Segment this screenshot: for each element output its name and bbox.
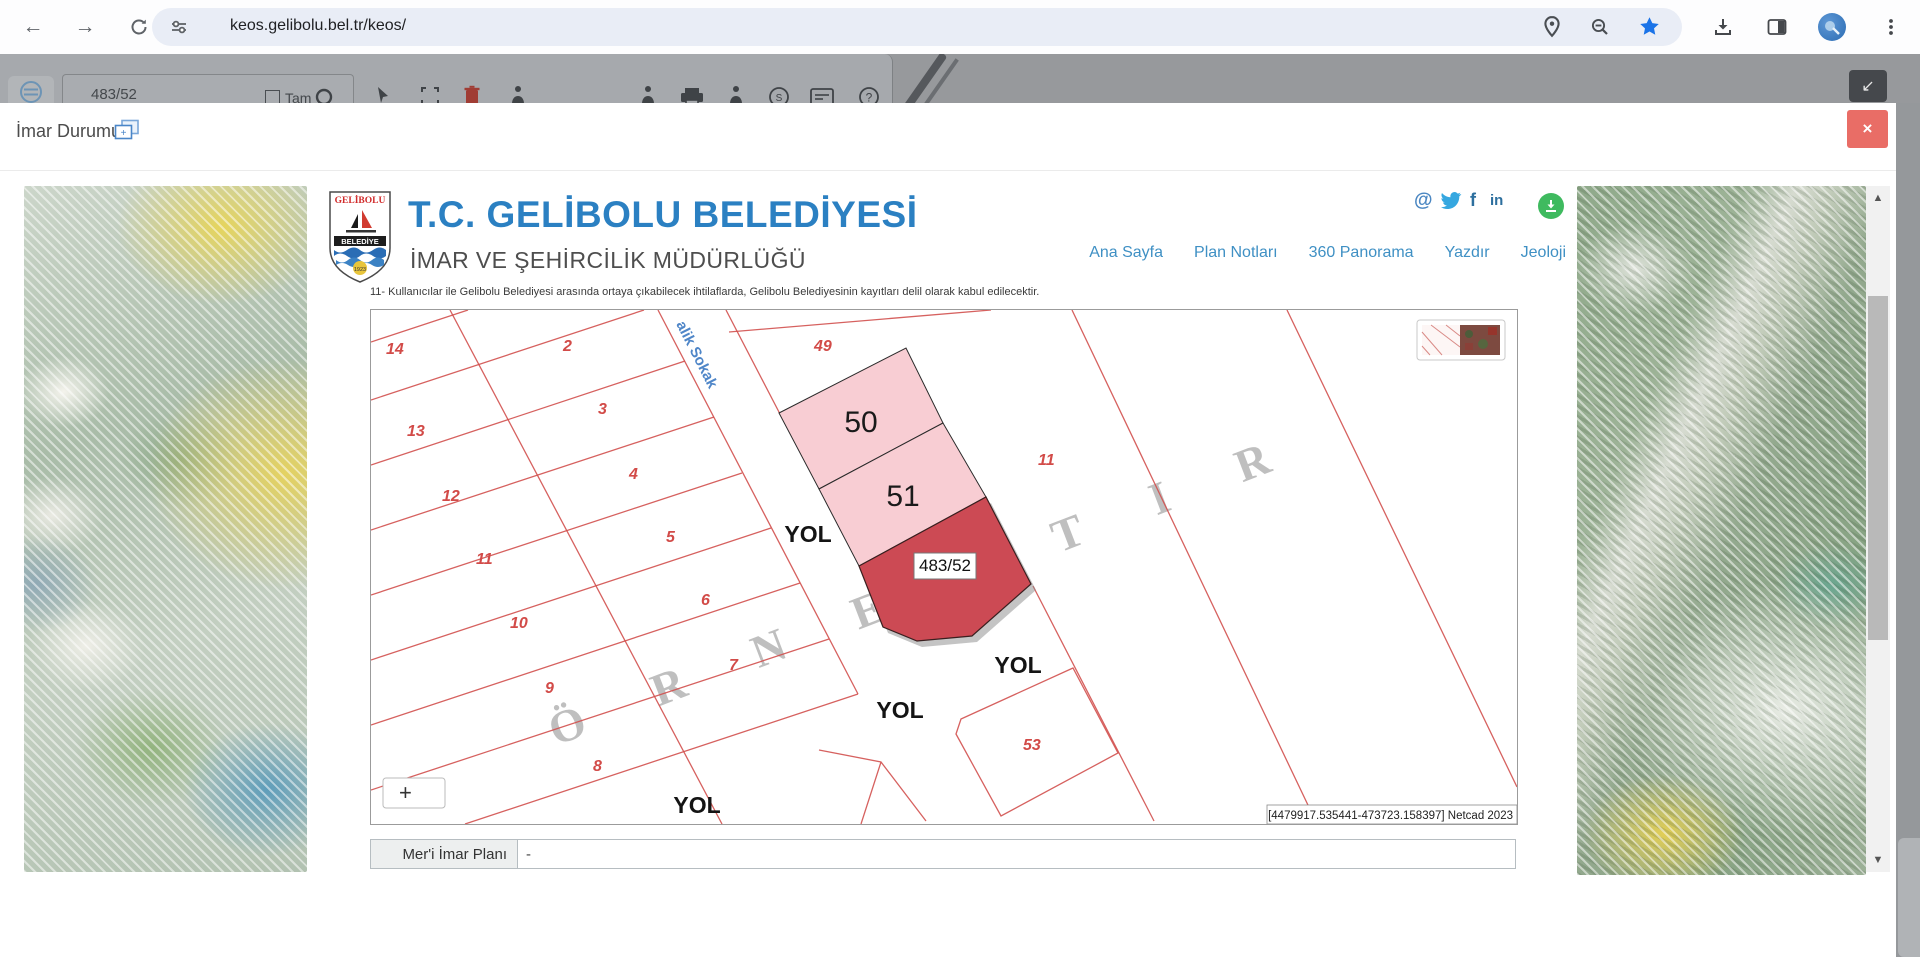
svg-text:6: 6 [701,592,710,609]
svg-text:1923: 1923 [354,267,366,273]
nav-jeoloji[interactable]: Jeoloji [1521,244,1566,262]
dimmed-right-widget [1898,838,1920,957]
twitter-icon[interactable] [1440,192,1462,210]
svg-text:11: 11 [476,551,493,568]
zoom-out-icon[interactable] [1590,17,1610,42]
location-pin-icon[interactable] [1542,16,1562,43]
scroll-up-icon[interactable]: ▲ [1866,188,1890,208]
coordinates-text: [4479917.535441-473723.158397] Netcad 20… [1268,810,1513,822]
layers-icon [19,80,43,103]
svg-text:YOL: YOL [994,652,1041,678]
modal-title: İmar Durumu [16,121,121,142]
help-icon: ? [858,86,880,103]
site-nav: Ana Sayfa Plan Notları 360 Panorama Yazd… [1060,244,1566,262]
svg-text:10: 10 [510,615,528,632]
disclaimer-text: 11- Kullanıcılar ile Gelibolu Belediyesi… [370,286,1039,298]
svg-text:9: 9 [545,680,554,697]
dimmed-page-right-edge [1896,103,1920,957]
svg-text:13: 13 [407,423,425,440]
layers-button [8,76,54,103]
svg-text:GELİBOLU: GELİBOLU [335,194,386,206]
dimmed-background-page: 483/52 Tam S ? ↙ [0,54,1920,103]
aerial-photo-left [24,186,307,872]
svg-text:+: + [121,128,127,139]
facebook-icon[interactable]: f [1470,190,1476,211]
content-scrollbar[interactable]: ▲ ▼ [1866,186,1890,872]
svg-text:12: 12 [442,488,460,505]
back-icon[interactable]: ← [18,12,48,42]
popout-icon[interactable]: + [114,119,140,141]
svg-text:BELEDİYE: BELEDİYE [341,237,379,246]
svg-text:2: 2 [562,338,572,355]
modal-header: İmar Durumu + × [0,103,1896,171]
svg-text:YOL: YOL [784,521,831,547]
card-icon [810,87,834,103]
forward-icon[interactable]: → [70,12,100,42]
svg-text:3: 3 [598,401,607,418]
side-panel-icon[interactable] [1762,12,1792,42]
pointer-tool-icon [374,86,392,103]
download-icon[interactable] [1708,12,1738,42]
svg-text:YOL: YOL [673,792,720,818]
imar-plan-value: - [518,840,1515,868]
zoom-in-button[interactable]: + [383,778,445,808]
scroll-down-icon[interactable]: ▼ [1866,850,1890,870]
svg-text:14: 14 [386,341,404,358]
person2-icon [728,85,744,103]
menu-icon[interactable] [1876,12,1906,42]
url-bar[interactable]: keos.gelibolu.bel.tr/keos/ [152,8,1682,46]
street-name-label: alik Sokak [672,318,721,392]
municipality-logo: GELİBOLU BELEDİYE 1923 [328,190,392,284]
browser-toolbar: ← → keos.gelibolu.bel.tr/keos/ [0,0,1920,55]
nav-ana-sayfa[interactable]: Ana Sayfa [1089,244,1163,262]
download-circle-icon[interactable] [1538,193,1564,219]
site-info-icon[interactable] [170,18,188,41]
tam-checkbox [265,90,280,103]
svg-text:?: ? [866,91,873,104]
parcel-search-value: 483/52 [91,86,137,103]
screen: ← → keos.gelibolu.bel.tr/keos/ [0,0,1920,957]
svg-text:49: 49 [813,338,832,355]
linkedin-icon[interactable]: in [1490,192,1503,209]
search-icon [314,86,336,103]
person-icon [640,85,656,103]
selected-parcel-label: 483/52 [919,556,971,575]
parcel-50-label: 50 [844,406,877,439]
aerial-photo-right [1577,186,1866,875]
nav-yazdir[interactable]: Yazdır [1445,244,1490,262]
imar-plan-row: Mer'i İmar Planı - [370,839,1516,869]
nav-360-panorama[interactable]: 360 Panorama [1309,244,1414,262]
svg-text:53: 53 [1023,737,1041,754]
trash-icon [463,85,481,103]
svg-text:7: 7 [729,657,739,674]
bookmark-star-icon[interactable] [1639,16,1660,42]
overview-map-control[interactable] [1417,320,1505,360]
imar-plan-label: Mer'i İmar Planı [371,840,518,868]
tam-label: Tam [285,90,311,103]
s-circle-icon: S [768,86,790,103]
parcel-51-label: 51 [886,480,919,513]
reload-icon[interactable] [124,12,154,42]
svg-text:S: S [776,93,783,103]
select-area-icon [420,86,440,103]
avatar[interactable] [1818,13,1846,41]
imar-durumu-modal: İmar Durumu + × GELİBOLU BELEDİYE 1923 [0,103,1896,957]
url-text[interactable]: keos.gelibolu.bel.tr/keos/ [230,17,406,35]
svg-text:YOL: YOL [876,697,923,723]
scrollbar-thumb[interactable] [1868,296,1888,640]
nav-plan-notlari[interactable]: Plan Notları [1194,244,1278,262]
fullscreen-toggle-icon[interactable]: ↙ [1849,70,1887,102]
svg-text:4: 4 [628,466,638,483]
at-icon[interactable]: @ [1414,190,1433,212]
svg-text:5: 5 [666,529,676,546]
printer-icon [680,87,704,103]
close-icon[interactable]: × [1847,110,1888,148]
svg-text:+: + [399,780,412,805]
svg-text:8: 8 [593,758,602,775]
site-title: T.C. GELİBOLU BELEDİYESİ [408,194,918,236]
info-person-icon [510,85,526,103]
cadastral-map[interactable]: ÖRNEKTIR [370,309,1518,825]
site-subtitle: İMAR VE ŞEHİRCİLİK MÜDÜRLÜĞÜ [410,247,806,274]
svg-text:11: 11 [1038,452,1055,469]
